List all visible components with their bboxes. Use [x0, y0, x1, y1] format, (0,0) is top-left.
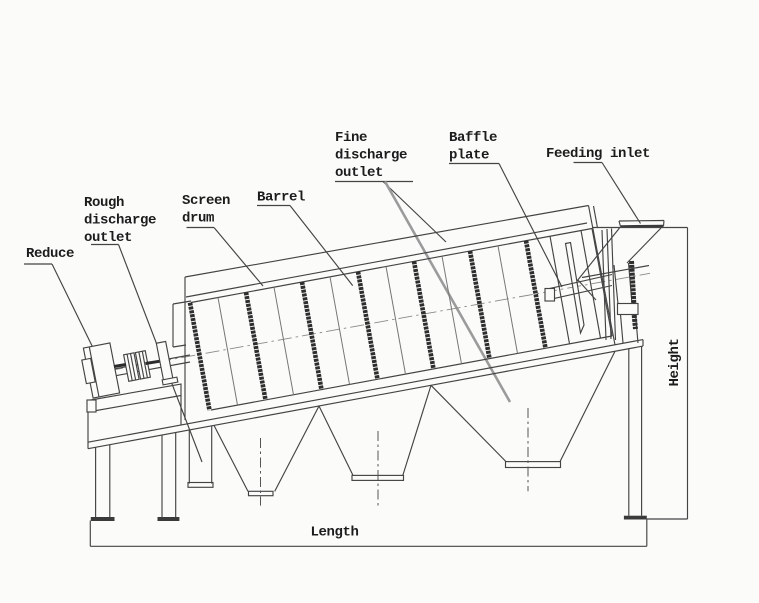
svg-text:Feeding inlet: Feeding inlet [546, 146, 650, 162]
svg-text:Screen: Screen [182, 193, 230, 209]
svg-text:discharge: discharge [335, 148, 407, 164]
svg-text:outlet: outlet [335, 165, 383, 181]
svg-text:plate: plate [449, 148, 489, 164]
svg-text:Rough: Rough [84, 195, 124, 211]
svg-text:Baffle: Baffle [449, 130, 497, 146]
svg-text:discharge: discharge [84, 213, 156, 229]
svg-text:Height: Height [667, 338, 683, 386]
svg-text:Length: Length [311, 525, 359, 541]
svg-text:outlet: outlet [84, 230, 132, 246]
svg-text:Reduce: Reduce [26, 246, 74, 262]
svg-text:drum: drum [182, 211, 214, 227]
svg-text:Barrel: Barrel [257, 190, 305, 206]
svg-text:Fine: Fine [335, 130, 367, 146]
